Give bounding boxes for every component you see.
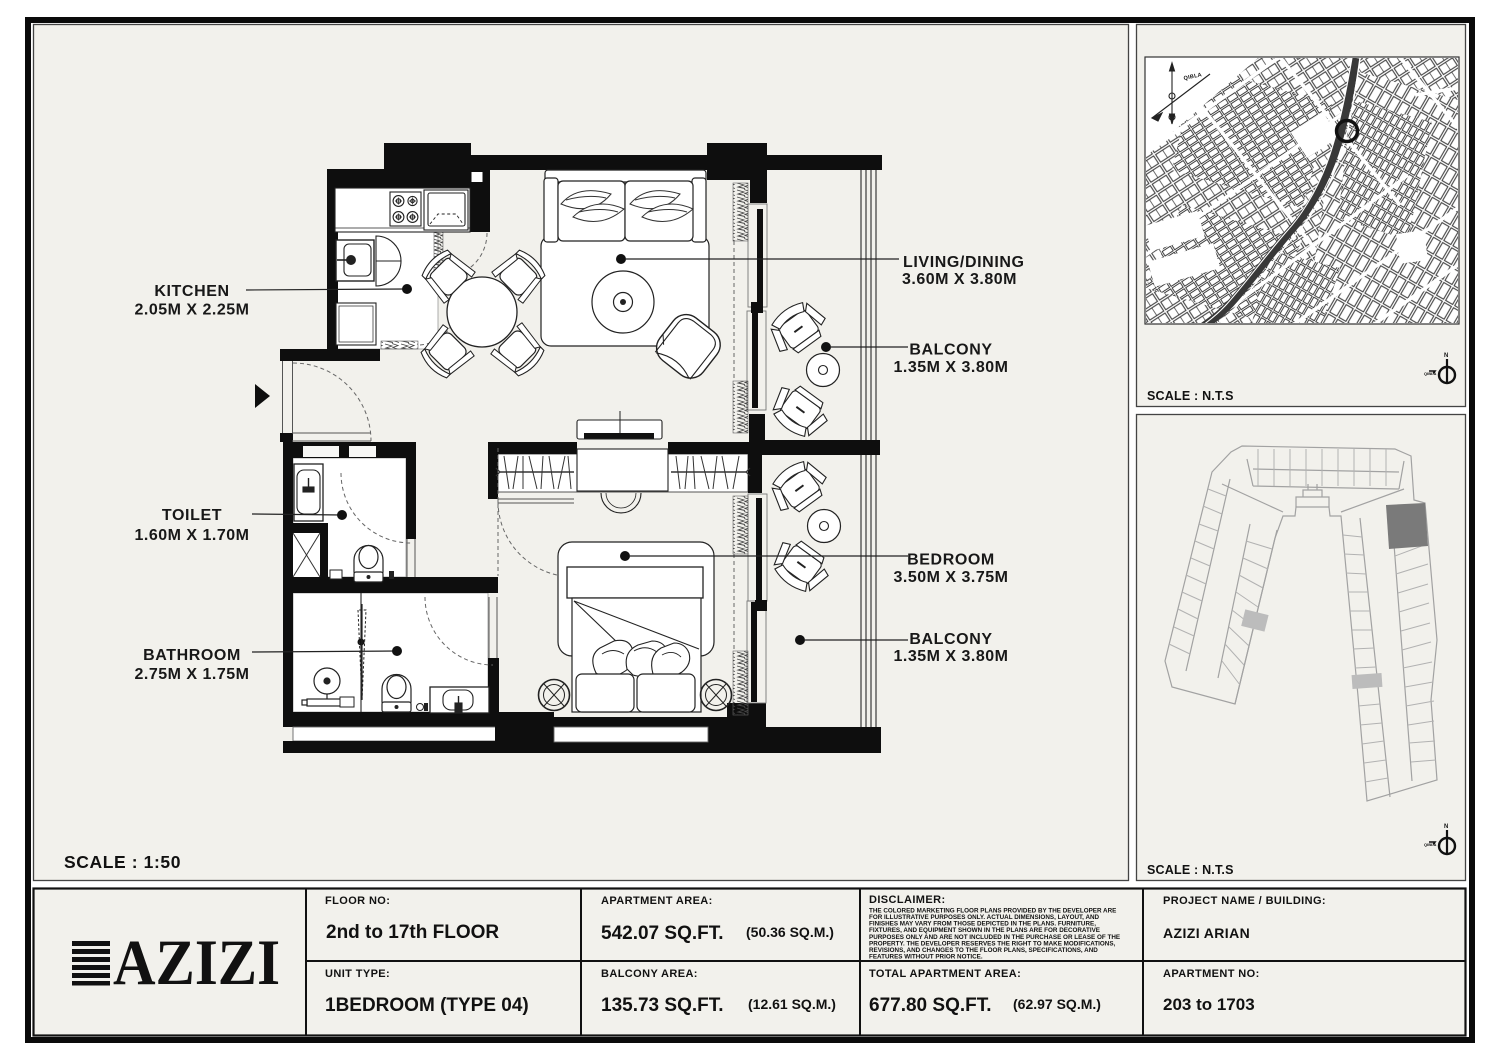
svg-text:SCALE : N.T.S: SCALE : N.T.S (1147, 863, 1234, 877)
svg-text:BATHROOM: BATHROOM (143, 647, 241, 664)
svg-text:1.35M X 3.80M: 1.35M X 3.80M (894, 359, 1009, 376)
svg-text:QIBLA: QIBLA (1424, 371, 1437, 376)
svg-text:(50.36 SQ.M.): (50.36 SQ.M.) (746, 924, 834, 940)
svg-text:LIVING/DINING: LIVING/DINING (903, 254, 1025, 271)
svg-text:135.73 SQ.FT.: 135.73 SQ.FT. (601, 995, 724, 1016)
svg-text:PROJECT NAME / BUILDING:: PROJECT NAME / BUILDING: (1163, 895, 1326, 907)
svg-text:BALCONY: BALCONY (909, 631, 992, 648)
svg-text:1BEDROOM (TYPE 04): 1BEDROOM (TYPE 04) (325, 995, 529, 1016)
svg-text:UNIT TYPE:: UNIT TYPE: (325, 968, 390, 980)
svg-text:APARTMENT NO:: APARTMENT NO: (1163, 968, 1260, 980)
svg-text:SCALE : 1:50: SCALE : 1:50 (64, 852, 181, 872)
svg-text:AZIZI ARIAN: AZIZI ARIAN (1163, 925, 1250, 941)
svg-text:203 to 1703: 203 to 1703 (1163, 995, 1255, 1014)
svg-text:BALCONY: BALCONY (909, 342, 992, 359)
svg-text:TOILET: TOILET (162, 507, 222, 524)
svg-text:FLOOR NO:: FLOOR NO: (325, 895, 390, 907)
svg-text:(12.61 SQ.M.): (12.61 SQ.M.) (748, 996, 836, 1012)
svg-text:SCALE : N.T.S: SCALE : N.T.S (1147, 389, 1234, 403)
svg-text:FIXTURES, AND EQUIPMENT SHOWN: FIXTURES, AND EQUIPMENT SHOWN IN THE PLA… (869, 927, 1100, 934)
svg-text:BALCONY AREA:: BALCONY AREA: (601, 968, 698, 980)
svg-text:3.60M X 3.80M: 3.60M X 3.80M (902, 271, 1017, 288)
svg-text:2.75M X 1.75M: 2.75M X 1.75M (135, 666, 250, 683)
svg-text:677.80 SQ.FT.: 677.80 SQ.FT. (869, 995, 992, 1016)
svg-text:3.50M X 3.75M: 3.50M X 3.75M (894, 569, 1009, 586)
svg-text:DISCLAIMER:: DISCLAIMER: (869, 894, 946, 906)
svg-text:FEATURES WITHOUT PRIOR NOTICE.: FEATURES WITHOUT PRIOR NOTICE. (869, 953, 983, 960)
svg-text:N: N (1444, 824, 1448, 830)
svg-text:APARTMENT AREA:: APARTMENT AREA: (601, 895, 713, 907)
svg-text:BEDROOM: BEDROOM (907, 552, 995, 569)
svg-text:AZIZI: AZIZI (113, 927, 280, 999)
svg-text:1.35M X 3.80M: 1.35M X 3.80M (894, 648, 1009, 665)
svg-text:(62.97 SQ.M.): (62.97 SQ.M.) (1013, 996, 1101, 1012)
svg-text:N: N (1444, 353, 1448, 359)
svg-text:542.07 SQ.FT.: 542.07 SQ.FT. (601, 923, 724, 944)
svg-text:2nd to 17th FLOOR: 2nd to 17th FLOOR (326, 922, 499, 943)
svg-text:QIBLA: QIBLA (1424, 842, 1437, 847)
svg-text:KITCHEN: KITCHEN (154, 283, 229, 300)
svg-text:1.60M X 1.70M: 1.60M X 1.70M (135, 527, 250, 544)
svg-text:2.05M X 2.25M: 2.05M X 2.25M (135, 302, 250, 319)
svg-text:TOTAL APARTMENT AREA:: TOTAL APARTMENT AREA: (869, 968, 1021, 980)
